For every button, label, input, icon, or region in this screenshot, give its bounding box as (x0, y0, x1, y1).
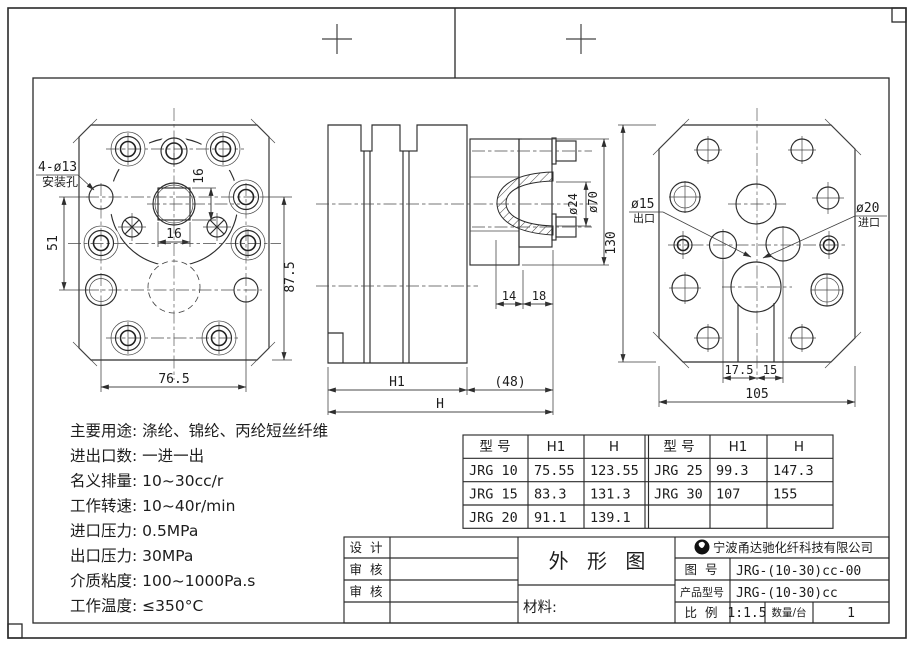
svg-text:83.3: 83.3 (534, 487, 567, 503)
dim-total-len: H (436, 397, 444, 412)
drawing-no-value: JRG-(10-30)cc-00 (736, 564, 861, 579)
spec-notes: 主要用途: 涤纶、锦纶、丙纶短丝纤维 进出口数: 一进一出 名义排量: 10~3… (70, 422, 328, 615)
drawing-title: 外 形 图 (549, 549, 652, 573)
svg-text:75.55: 75.55 (534, 463, 575, 479)
corner-notch-bottom-left (8, 624, 22, 638)
check-label: 审 核 (350, 584, 385, 599)
dim-plate-len: 18 (532, 289, 546, 303)
spec-line: 介质粘度: 100~1000Pa.s (70, 572, 255, 590)
spec-line: 工作转速: 10~40r/min (70, 497, 235, 515)
product-model-label: 产品型号 (680, 585, 724, 599)
table-row: JRG 20 91.1 139.1 (469, 510, 631, 526)
svg-text:JRG 20: JRG 20 (469, 510, 518, 526)
product-model-value: JRG-(10-30)cc (736, 586, 838, 601)
svg-text:139.1: 139.1 (590, 510, 631, 526)
back-dimensions: 130 17.5 15 105 (604, 125, 855, 407)
svg-text:123.55: 123.55 (590, 463, 639, 479)
side-body-outline (328, 125, 467, 363)
spec-line: 进出口数: 一进一出 (70, 447, 204, 465)
dim-port-off-right: 15 (763, 363, 777, 377)
front-view: 16 16 51 87.5 76.5 4-ø13 安装孔 (36, 108, 298, 392)
svg-text:99.3: 99.3 (716, 463, 749, 479)
dim-flange-dia: ø70 (586, 191, 600, 213)
table-header: 型 号 (663, 439, 694, 455)
dim-nose-len: 14 (502, 289, 516, 303)
spec-line: 主要用途: 涤纶、锦纶、丙纶短丝纤维 (70, 422, 328, 440)
qty-value: 1 (847, 606, 855, 621)
svg-text:107: 107 (716, 487, 740, 503)
registration-cross (322, 24, 352, 54)
dim-hole-h-spacing: 76.5 (158, 372, 189, 387)
back-port-labels: ø15 出口 ø20 进口 (629, 197, 887, 258)
corner-notch-top-right (892, 8, 906, 22)
table-row: JRG 10 75.55 123.55 JRG 25 99.3 147.3 (469, 463, 814, 479)
drawing-no-label: 图 号 (685, 562, 720, 577)
spec-line: 工作温度: ≤350°C (70, 597, 203, 615)
company-logo (695, 540, 710, 555)
back-view: ø15 出口 ø20 进口 130 17.5 15 105 (604, 108, 887, 407)
table-header: H (794, 439, 804, 455)
spec-line: 进口压力: 0.5MPa (70, 522, 198, 540)
dim-square-height: 16 (192, 168, 207, 184)
label-inlet: 进口 (858, 216, 880, 229)
registration-cross (566, 24, 596, 54)
spec-line: 出口压力: 30MPa (70, 547, 193, 565)
company-name: 宁波甬达驰化纤科技有限公司 (713, 540, 873, 555)
table-header: H (609, 439, 619, 455)
side-flange (470, 139, 519, 265)
design-label: 设 计 (350, 540, 385, 555)
title-block: 设 计 审 核 审 核 外 形 图 材料: 宁波甬达驰化纤科技有限公司 图 号 … (344, 537, 889, 623)
dim-shaft-dia: ø24 (566, 193, 580, 215)
dim-port-off-left: 17.5 (725, 363, 754, 377)
table-header: H1 (729, 439, 748, 455)
cad-drawing-page: 16 16 51 87.5 76.5 4-ø13 安装孔 (0, 0, 909, 645)
back-holes (670, 139, 843, 349)
svg-text:131.3: 131.3 (590, 487, 631, 503)
label-inlet-dia: ø20 (856, 201, 879, 216)
side-bottom-step (328, 333, 343, 363)
side-plate-joints (364, 151, 409, 363)
svg-text:155: 155 (773, 487, 797, 503)
scale-label: 比 例 (685, 605, 720, 620)
qty-label: 数量/台 (771, 606, 806, 619)
label-mount-count: 4-ø13 (38, 160, 77, 175)
dim-plate-height: 130 (604, 231, 619, 254)
dim-height-ref: 87.5 (283, 261, 298, 292)
dim-body-len: H1 (389, 375, 405, 390)
side-bell-section (497, 172, 553, 235)
svg-text:JRG 25: JRG 25 (654, 463, 703, 479)
label-mount-hole: 安装孔 (42, 174, 78, 189)
side-view: ø24 ø70 14 18 H1 (48) H (316, 125, 609, 415)
spec-table: 型 号 H1 H 型 号 H1 H JRG 10 75.55 123.55 JR… (463, 435, 833, 528)
drawing-canvas: 16 16 51 87.5 76.5 4-ø13 安装孔 (0, 0, 909, 645)
label-outlet-dia: ø15 (631, 197, 654, 212)
svg-text:JRG 15: JRG 15 (469, 487, 518, 503)
svg-text:91.1: 91.1 (534, 510, 567, 526)
dim-square-width: 16 (166, 227, 182, 242)
table-header: H1 (547, 439, 566, 455)
svg-text:JRG 30: JRG 30 (654, 487, 703, 503)
label-outlet: 出口 (633, 211, 655, 225)
dim-plate-width: 105 (745, 387, 768, 402)
material-label: 材料: (523, 599, 557, 616)
dim-ext-len: (48) (494, 375, 525, 390)
dim-hole-v-spacing: 51 (46, 235, 61, 251)
table-row: JRG 15 83.3 131.3 JRG 30 107 155 (469, 487, 797, 503)
svg-text:JRG 10: JRG 10 (469, 463, 518, 479)
check-label: 审 核 (350, 562, 385, 577)
spec-line: 名义排量: 10~30cc/r (70, 472, 224, 490)
svg-text:147.3: 147.3 (773, 463, 814, 479)
table-header: 型 号 (479, 439, 510, 455)
scale-value: 1:1.5 (727, 606, 766, 621)
